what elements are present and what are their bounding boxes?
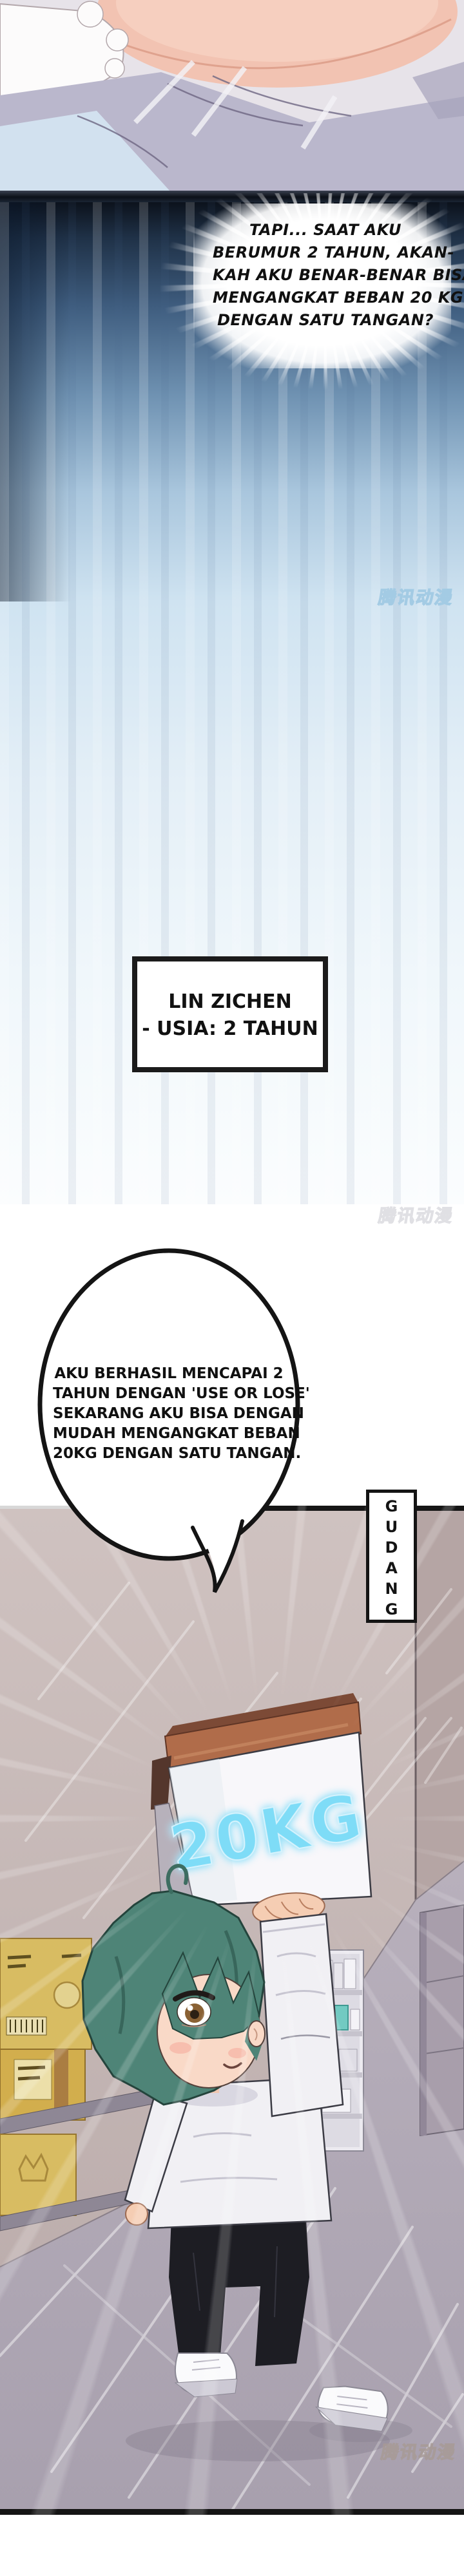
panel-border-bottom [0, 2509, 464, 2515]
sign-letter: D [369, 1537, 414, 1558]
cabinet-right [420, 1905, 464, 2136]
publisher-watermark: 腾讯动漫 [380, 2438, 458, 2463]
bubble-line: MUDAH MENGANGKAT BEBAN [53, 1424, 285, 1444]
sign-letter: A [369, 1558, 414, 1578]
sign-letter: G [369, 1496, 414, 1517]
publisher-watermark: 腾讯动漫 [377, 583, 456, 609]
sign-letter: U [369, 1517, 414, 1537]
burst-bubble-text: TAPI... SAAT AKU BERUMUR 2 TAHUN, AKAN- … [213, 219, 438, 332]
burst-line: DENGAN SATU TANGAN? [213, 309, 438, 332]
burst-line: KAH AKU BENAR-BENAR BISA [213, 264, 438, 287]
kid-ear [248, 2021, 265, 2047]
side-wall [416, 1506, 464, 1900]
burst-line: BERUMUR 2 TAHUN, AKAN- [213, 241, 438, 264]
caption-line: - USIA: 2 TAHUN [137, 1016, 323, 1043]
sign-letter: G [369, 1599, 414, 1620]
publisher-watermark: 腾讯动漫 [377, 1202, 456, 1227]
warehouse-panel: 20KG [0, 1506, 464, 2515]
caption-line: LIN ZICHEN [137, 989, 323, 1016]
bed-scene-illustration [0, 0, 464, 192]
bubble-line: SEKARANG AKU BISA DENGAN [53, 1404, 285, 1424]
blush [228, 2048, 246, 2058]
bubble-line: AKU BERHASIL MENCAPAI 2 [53, 1364, 285, 1384]
burst-line: TAPI... SAAT AKU [213, 219, 438, 241]
bubble-line: 20KG DENGAN SATU TANGAN. [53, 1444, 285, 1464]
warehouse-sign: G U D A N G [366, 1490, 417, 1623]
character-caption-box: LIN ZICHEN - USIA: 2 TAHUN [132, 956, 328, 1072]
sign-letter: N [369, 1578, 414, 1599]
speech-bubble-text: AKU BERHASIL MENCAPAI 2 TAHUN DENGAN 'US… [53, 1364, 285, 1464]
burst-line: MENGANGKAT BEBAN 20 KG [213, 287, 438, 309]
kid-shoe-left [175, 2353, 237, 2397]
bubble-line: TAHUN DENGAN 'USE OR LOSE' [53, 1384, 285, 1404]
comic-page: TAPI... SAAT AKU BERUMUR 2 TAHUN, AKAN- … [0, 0, 464, 2576]
blush [169, 2042, 191, 2054]
